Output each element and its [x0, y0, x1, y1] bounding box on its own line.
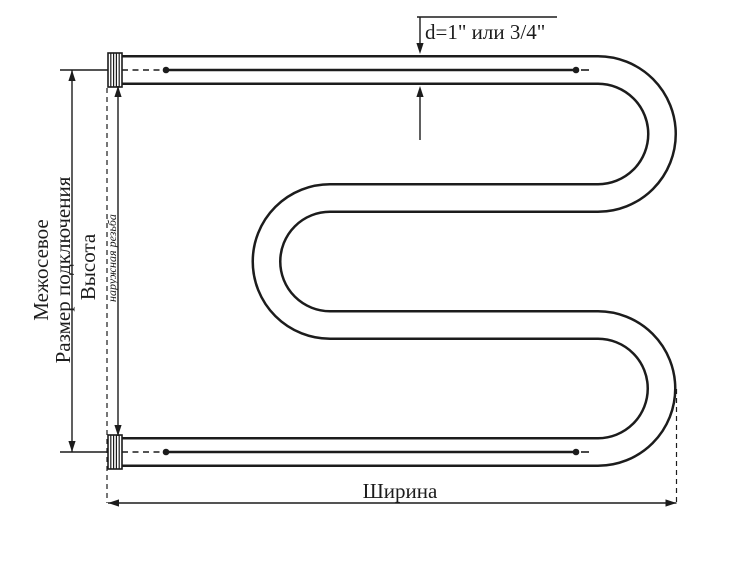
label-diameter-note: d=1" или 3/4": [425, 20, 545, 44]
arrowhead-up: [416, 86, 423, 97]
arrowhead-right: [666, 499, 677, 506]
centerline-dot: [163, 449, 170, 456]
arrowhead-up: [68, 70, 75, 81]
label-connection-size: Размер подключения: [51, 176, 75, 363]
towel-rail-dimension-drawing: Межосевое Размер подключения Высота нару…: [0, 0, 754, 566]
centerline-dot: [163, 67, 170, 74]
centerline-dot: [573, 67, 580, 74]
pipe-body: [122, 70, 662, 452]
label-external-thread: наружная резьба: [105, 214, 119, 302]
label-interaxial: Межосевое: [29, 219, 53, 320]
pipe-outline: [122, 70, 662, 452]
centerline-dot: [573, 449, 580, 456]
drawing-svg: Межосевое Размер подключения Высота нару…: [0, 0, 754, 566]
thread-top-body: [108, 53, 122, 87]
thread-bottom-body: [108, 435, 122, 469]
label-height: Высота: [76, 233, 100, 300]
thread-bottom: [108, 435, 122, 469]
arrowhead-left: [108, 499, 119, 506]
label-width: Ширина: [363, 479, 438, 503]
arrowhead-down: [416, 43, 423, 54]
thread-top: [108, 53, 122, 87]
pipe-fill: [122, 70, 662, 452]
arrowhead-down: [68, 441, 75, 452]
